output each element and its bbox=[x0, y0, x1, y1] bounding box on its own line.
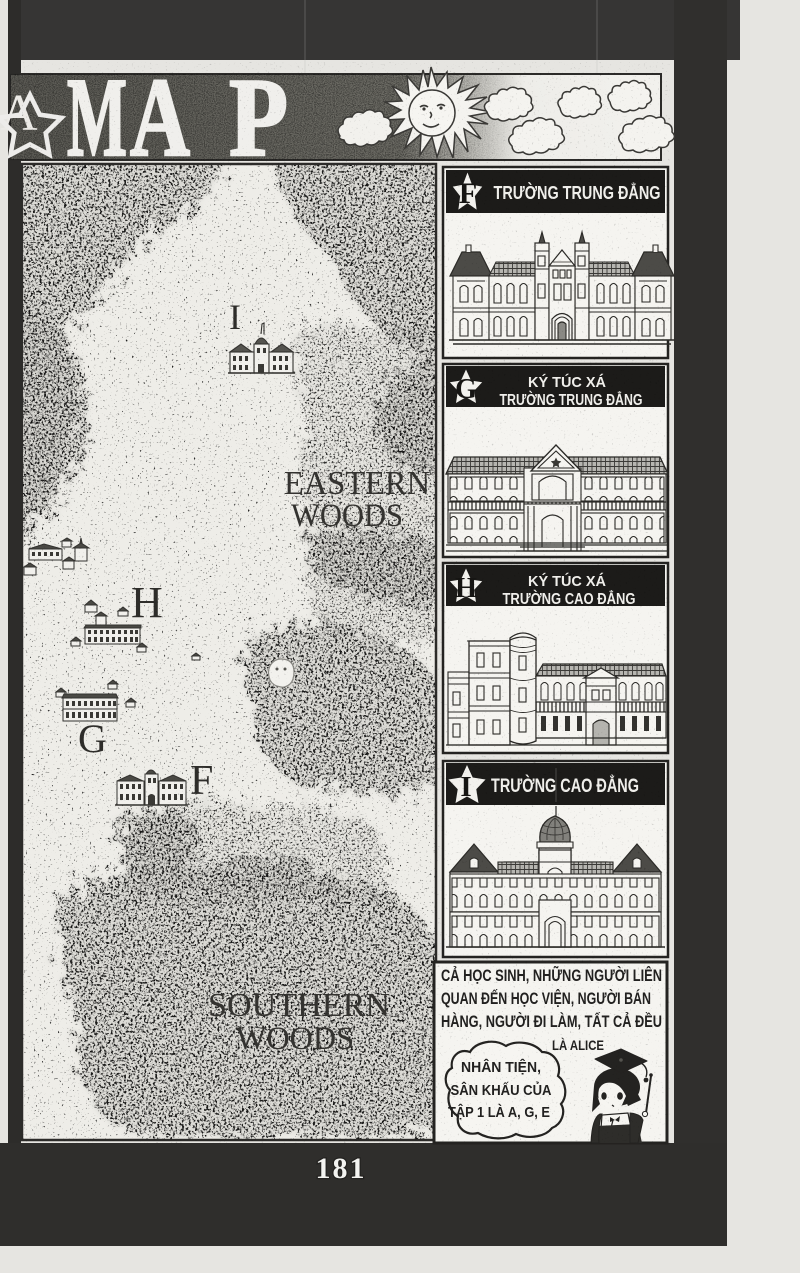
svg-text:181: 181 bbox=[316, 1152, 367, 1185]
